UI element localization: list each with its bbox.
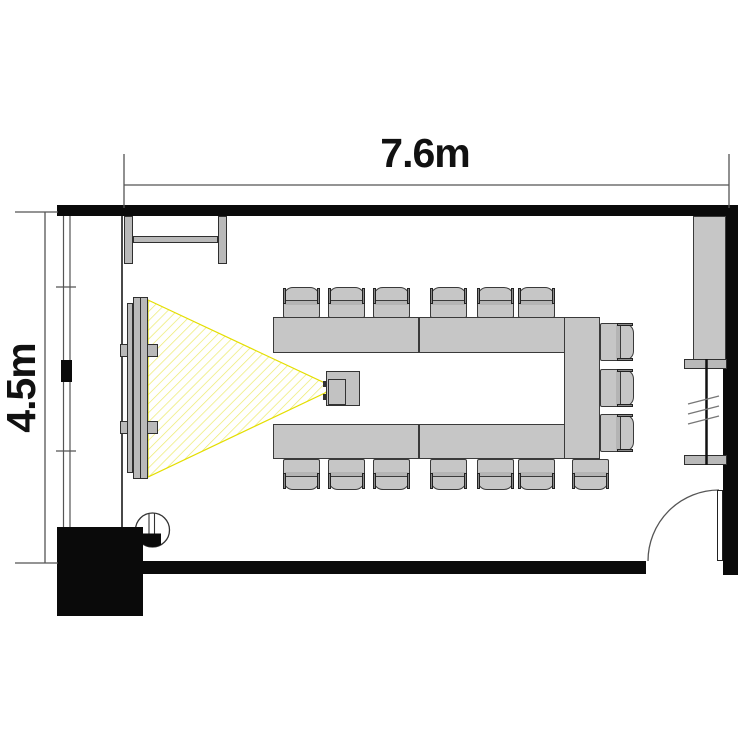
window-wall — [56, 216, 122, 527]
glass-panel — [688, 359, 719, 465]
projection-screen — [140, 297, 148, 479]
projector-nub — [323, 394, 327, 400]
projection-beam — [148, 300, 327, 477]
door-swing-arc — [648, 490, 719, 561]
projector-nub — [323, 381, 327, 387]
screen-bracket — [147, 421, 158, 434]
dimension-line-width — [124, 154, 729, 208]
projector-lens-housing — [328, 379, 346, 405]
door-leaf — [717, 490, 723, 561]
round-column — [130, 513, 170, 548]
floor-plan: 7.6m 4.5m — [0, 0, 750, 750]
screen-bracket — [147, 344, 158, 357]
plan-linework — [0, 0, 750, 750]
dimension-line-depth — [15, 212, 58, 563]
window-mullion — [61, 360, 72, 382]
screen-bracket — [120, 344, 128, 357]
screen-bracket — [120, 421, 128, 434]
